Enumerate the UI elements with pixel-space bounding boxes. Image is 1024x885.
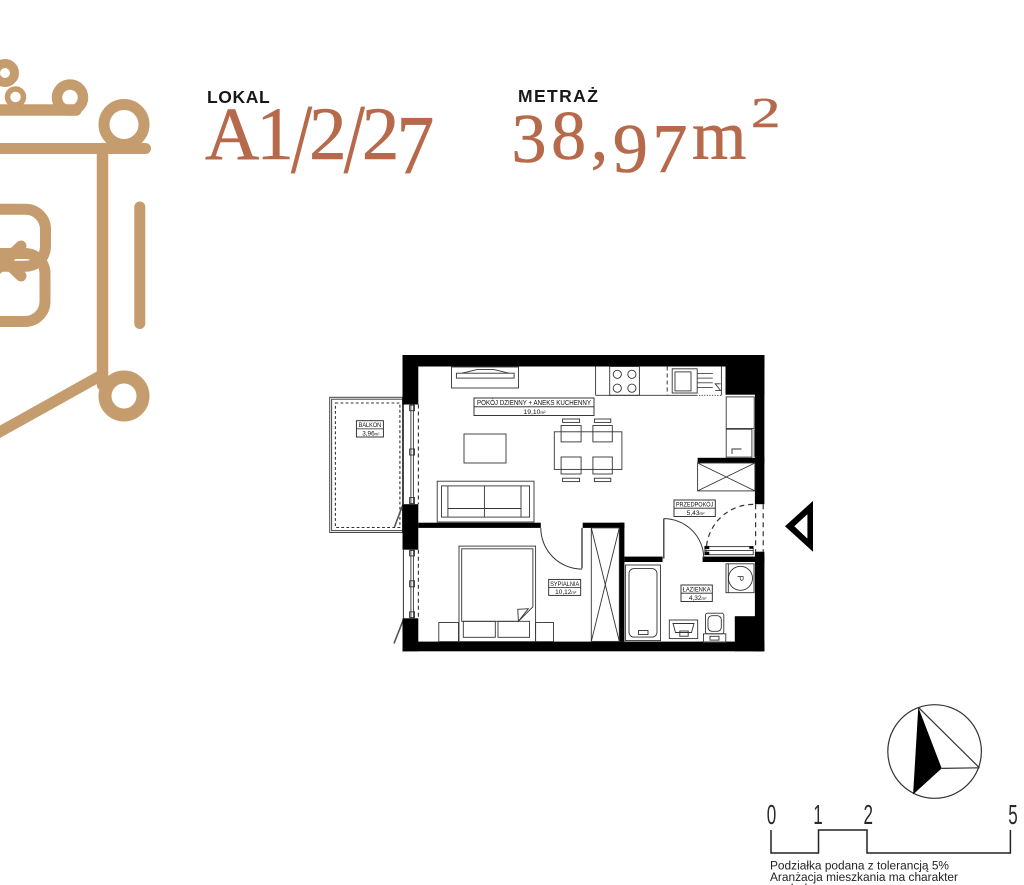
svg-text:poglądowy.: poglądowy. — [770, 881, 832, 885]
svg-text:PRZEDPOKÓJ: PRZEDPOKÓJ — [676, 500, 714, 509]
svg-text:4,32m²: 4,32m² — [689, 595, 707, 602]
svg-text:POKÓJ DZIENNY + ANEKS KUCHENNY: POKÓJ DZIENNY + ANEKS KUCHENNY — [477, 398, 591, 407]
svg-text:1: 1 — [813, 799, 822, 830]
svg-text:ŁAZIENKA: ŁAZIENKA — [683, 587, 712, 594]
svg-text:19,10m²: 19,10m² — [523, 409, 546, 416]
svg-text:0: 0 — [767, 799, 776, 830]
svg-text:3,96m²: 3,96m² — [362, 431, 380, 438]
svg-text:BALKON: BALKON — [359, 422, 382, 429]
svg-text:P: P — [736, 575, 746, 581]
svg-text:5: 5 — [1008, 799, 1017, 830]
svg-text:10,12m²: 10,12m² — [555, 589, 577, 596]
svg-text:SYPIALNIA: SYPIALNIA — [550, 581, 580, 588]
svg-text:5,43m²: 5,43m² — [687, 510, 705, 517]
svg-text:2: 2 — [864, 799, 873, 830]
